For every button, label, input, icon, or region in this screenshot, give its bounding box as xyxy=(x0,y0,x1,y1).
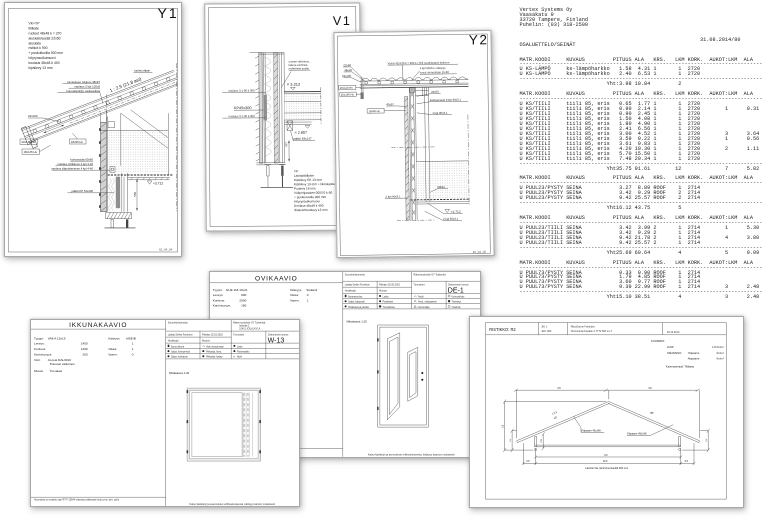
svg-text:Sama ulkona: Sama ulkona xyxy=(170,346,184,348)
svg-text:LUMI:: LUMI: xyxy=(667,345,674,349)
svg-text:Kynnyskisko: Kynnyskisko xyxy=(451,297,464,299)
svg-text:Huomioina on esitetty vain RT-: Huomioina on esitetty vain RT-F-10544 oh… xyxy=(34,498,119,501)
svg-text:Mittakaava 1:20: Mittakaava 1:20 xyxy=(169,371,190,375)
svg-text:VA8-A 15x15: VA8-A 15x15 xyxy=(47,336,65,340)
svg-text:Katso käsittelyt ja asennukset: Katso käsittelyt ja asennukset erillisse… xyxy=(189,502,275,506)
svg-text:höyrynsulkumuovi: höyrynsulkumuovi xyxy=(28,56,55,60)
svg-text:+3.712: +3.712 xyxy=(153,181,163,185)
svg-text:OMAPAINO:: OMAPAINO: xyxy=(667,351,682,355)
svg-text:JAK: 900: JAK: 900 xyxy=(541,330,552,333)
svg-text:550: 550 xyxy=(132,191,136,196)
svg-text:naulaus 2 kpl 120x5: naulaus 2 kpl 120x5 xyxy=(74,84,100,88)
svg-text:Salpa, kiinnipervilo: Salpa, kiinnipervilo xyxy=(171,350,191,353)
svg-text:MSE/B: MSE/B xyxy=(126,336,136,340)
svg-text:4 kpl 90x3.1: 4 kpl 90x3.1 xyxy=(433,110,449,114)
svg-text:2 kpl 90x3.1: 2 kpl 90x3.1 xyxy=(386,194,402,198)
svg-text:4.5: 4.5 xyxy=(648,387,652,390)
svg-text:Painikkeet: Painikkeet xyxy=(382,301,393,304)
svg-text:1450: 1450 xyxy=(81,341,88,345)
svg-text:25.12.2013: 25.12.2013 xyxy=(667,331,680,334)
svg-text:18x95 Hs: 18x95 Hs xyxy=(71,140,83,144)
svg-text:18x145 Hs: 18x145 Hs xyxy=(23,150,37,154)
svg-text:22x50: 22x50 xyxy=(344,63,352,67)
svg-text:ristikot k 900: ristikot k 900 xyxy=(28,46,47,50)
svg-text:990: 990 xyxy=(241,293,246,297)
svg-text:Väri:: Väri: xyxy=(34,357,40,361)
svg-text:Tunnukset: Tunnukset xyxy=(413,284,424,287)
svg-text:kampanaula 3 kpl 90x3.1: kampanaula 3 kpl 90x3.1 xyxy=(430,97,461,101)
svg-text:Kätisyys: Kätisyys xyxy=(290,288,302,292)
svg-text:85°: 85° xyxy=(650,412,654,415)
svg-text:Dokumentin tunnus: Dokumentin tunnus xyxy=(268,333,289,336)
svg-text:kuumasinkitty naulauslista: kuumasinkitty naulauslista xyxy=(66,89,100,93)
svg-text:tuulenohjain: tuulenohjain xyxy=(134,68,151,72)
svg-text:180: 180 xyxy=(241,304,246,308)
svg-text:Leveys:: Leveys: xyxy=(34,341,45,345)
svg-text:48x48: 48x48 xyxy=(344,68,352,72)
svg-text:Hurmerinta Käyrätie 2 JYT2: Hurmerinta Käyrätie 2 JYT2 500 m+T xyxy=(570,330,612,333)
svg-text:Risto/Janne Forsblom: Risto/Janne Forsblom xyxy=(570,325,594,328)
svg-text:Muutos: Muutos xyxy=(202,339,211,342)
svg-text:Sisäänk: Sisäänk xyxy=(306,288,317,292)
svg-text:Ovisilmä: Ovisilmä xyxy=(451,307,460,309)
svg-text:18x95 Hs: 18x95 Hs xyxy=(369,109,381,113)
svg-text:V1: V1 xyxy=(332,14,351,28)
svg-text:1: 1 xyxy=(131,341,133,345)
svg-text:22x50: 22x50 xyxy=(431,89,439,93)
svg-text:= 3.212: = 3.212 xyxy=(286,82,300,87)
svg-text:Laatija Stefan Forsblom: Laatija Stefan Forsblom xyxy=(344,284,369,287)
svg-text:Niole: Niole xyxy=(237,356,243,358)
svg-text:Puitteetakko: Puitteetakko xyxy=(237,350,250,353)
svg-text:0.5: 0.5 xyxy=(526,460,530,463)
svg-text:4.5: 4.5 xyxy=(557,387,561,390)
svg-text:62_04_04: 62_04_04 xyxy=(159,247,173,251)
svg-text:0.5: 0.5 xyxy=(684,460,688,463)
svg-text:RISTIKKO: R2: RISTIKKO: R2 xyxy=(489,327,516,332)
svg-text:OVIKAAVIO: OVIKAAVIO xyxy=(255,276,298,283)
svg-text:Alapaarre: Alapaarre xyxy=(687,356,699,360)
svg-text:naulaus ristikkoon 4 kpl 4-40: naulaus ristikkoon 4 kpl 4-40 xyxy=(57,162,93,166)
svg-text:W-13: W-13 xyxy=(267,337,284,344)
svg-text:Lävistin tila, lämmöneristetil: Lävistin tila, lämmöneristetilä 500 mm xyxy=(585,466,628,470)
svg-text:naulaus yläpuitteeseen 4 kpl 4: naulaus yläpuitteeseen 4 kpl 4-40 xyxy=(51,166,93,170)
svg-text:1490: 1490 xyxy=(81,347,88,351)
svg-text:JM: 1: JM: 1 xyxy=(541,325,548,328)
svg-text:0: 0 xyxy=(131,352,133,356)
svg-text:Pikkasija, kimp.: Pikkasija, kimp. xyxy=(206,351,222,353)
svg-text:Mittakaava 1:20: Mittakaava 1:20 xyxy=(346,320,367,324)
svg-text:palkki 48x147: palkki 48x147 xyxy=(293,137,312,141)
svg-text:Korkeus:: Korkeus: xyxy=(212,299,224,303)
svg-text:Oikea:: Oikea: xyxy=(108,347,117,351)
svg-text:Salpa, korkiposti: Salpa, korkiposti xyxy=(171,355,188,358)
svg-text:Turvalukitus: Turvalukitus xyxy=(382,306,395,309)
svg-text:20x145 Hs: 20x145 Hs xyxy=(341,92,355,96)
svg-text:DE-1: DE-1 xyxy=(447,288,463,295)
svg-text:aluskate: aluskate xyxy=(28,41,41,45)
svg-text:Korkeus:: Korkeus: xyxy=(34,347,46,351)
svg-text:uuman vahvistus,: uuman vahvistus, xyxy=(288,59,309,63)
svg-text:Pikkasija, katiep.: Pikkasija, katiep. xyxy=(206,355,223,358)
svg-text:palkki KP 51x200: palkki KP 51x200 xyxy=(71,189,93,193)
svg-text:Hyväksyjä: Hyväksyjä xyxy=(167,339,179,342)
svg-text:Oikea:: Oikea: xyxy=(290,293,299,297)
svg-text:EUE 118 10x21: EUE 118 10x21 xyxy=(226,288,248,292)
svg-text:Kätisyys: Kätisyys xyxy=(108,336,120,340)
svg-text:Päiväys 26.05.2010: Päiväys 26.05.2010 xyxy=(379,284,401,287)
svg-text:2090: 2090 xyxy=(239,299,246,303)
svg-text:laita ja varmista: laita ja varmista xyxy=(288,63,307,67)
svg-text:= 2.807: = 2.807 xyxy=(294,131,306,135)
svg-text:Sisäverhouslevy 13 mm: Sisäverhouslevy 13 mm xyxy=(294,208,328,212)
svg-text:20x120 Hs: 20x120 Hs xyxy=(21,140,35,144)
svg-text:VK+YP: VK+YP xyxy=(28,21,40,25)
svg-text:10.0: 10.0 xyxy=(602,460,607,463)
svg-text:molemmin puolin: molemmin puolin xyxy=(288,66,309,70)
svg-text:Tyyppi:: Tyyppi: xyxy=(212,288,222,292)
svg-text:vasat alennataan 15-30: vasat alennataan 15-30 xyxy=(420,70,450,74)
svg-text:Saranasovitus: Saranasovitus xyxy=(347,296,362,299)
svg-text:40x97: 40x97 xyxy=(386,102,394,106)
svg-text:kipsilevy 13 mm: kipsilevy 13 mm xyxy=(28,66,52,70)
svg-text:1.8 Kn/m²: 1.8 Kn/m² xyxy=(712,345,724,349)
svg-text:lumiesteen tukipuu 48x97: lumiesteen tukipuu 48x97 xyxy=(67,80,100,84)
svg-text:Karmisyvyys:: Karmisyvyys: xyxy=(212,304,230,308)
svg-text:Vasen:: Vasen: xyxy=(290,299,299,303)
svg-text:Ovensulkija: Ovensulkija xyxy=(417,307,430,309)
svg-text:Muutos: Muutos xyxy=(379,290,388,293)
svg-text:48°: 48° xyxy=(553,416,558,420)
svg-text:Laatija Stefan Forsblom: Laatija Stefan Forsblom xyxy=(167,333,192,336)
svg-text:KUORMAT:: KUORMAT: xyxy=(651,339,665,343)
svg-text:9.0: 9.0 xyxy=(604,454,608,457)
svg-text:Suunnittelutoimisto: Suunnittelutoimisto xyxy=(167,321,188,324)
svg-text:1:2.5: 1:2.5 xyxy=(551,410,558,415)
svg-text:Muuta:: Muuta: xyxy=(34,368,44,372)
svg-text:Katemateriaali: Tiilikatto: Katemateriaali: Tiilikatto xyxy=(666,364,695,368)
svg-text:Turvalasi: Turvalasi xyxy=(49,368,62,372)
svg-text:naulaus 3 1-90 k 300: naulaus 3 1-90 k 300 xyxy=(228,88,255,92)
svg-text:Lukko: Lukko xyxy=(382,297,389,299)
svg-text:KP45x300: KP45x300 xyxy=(233,106,251,110)
svg-text:1: 1 xyxy=(131,347,133,351)
svg-text:20x120 Hs: 20x120 Hs xyxy=(340,85,354,89)
svg-text:Tunnukset: Tunnukset xyxy=(233,333,244,336)
svg-text:tiilikate: tiilikate xyxy=(28,26,38,30)
svg-text:kulmanaula 60x60: kulmanaula 60x60 xyxy=(70,157,93,161)
svg-text:Pitkäsalpa ja painike: Pitkäsalpa ja painike xyxy=(348,306,370,309)
svg-text:Päiväys 25.02.2010: Päiväys 25.02.2010 xyxy=(202,333,224,336)
svg-text:Hyväksyjä: Hyväksyjä xyxy=(344,290,356,293)
svg-text:IKKUNAKAAVIO: IKKUNAKAAVIO xyxy=(69,322,127,329)
svg-text:62_04_02: 62_04_02 xyxy=(473,249,487,253)
svg-text:0.4: 0.4 xyxy=(706,438,708,442)
svg-text:Leveys:: Leveys: xyxy=(212,293,223,297)
svg-text:Dokumentin tunnus: Dokumentin tunnus xyxy=(448,284,469,287)
svg-text:Karmisyvyys:: Karmisyvyys: xyxy=(34,352,52,356)
svg-text:4 kpl 90x3.1 etäisyys: 4 kpl 90x3.1 etäisyys xyxy=(420,65,446,69)
svg-text:tiilikko: tiilikko xyxy=(438,184,446,188)
svg-text:Y2: Y2 xyxy=(469,32,489,47)
svg-text:Rakennuskohde OY Työkenttä: Rakennuskohde OY Työkenttä xyxy=(233,321,266,324)
svg-text:+ puskuituvilla 500 mm: + puskuituvilla 500 mm xyxy=(28,51,63,55)
svg-text:1.6: 1.6 xyxy=(501,424,504,428)
svg-text:Vasen:: Vasen: xyxy=(108,352,117,356)
svg-text:22x100: 22x100 xyxy=(28,114,38,118)
svg-text:Kn/m²: Kn/m² xyxy=(716,351,723,355)
svg-text:0.4: 0.4 xyxy=(510,438,512,442)
svg-text:477: 477 xyxy=(284,142,288,147)
svg-text:Laitto: Laitto xyxy=(237,345,243,348)
svg-text:Puuosat valkoinen: Puuosat valkoinen xyxy=(49,362,74,366)
svg-text:Kn/m²: Kn/m² xyxy=(716,356,723,360)
svg-text:0: 0 xyxy=(306,293,308,297)
svg-text:Rakennuskohde OY Työkenttä: Rakennuskohde OY Työkenttä xyxy=(413,274,446,277)
svg-text:2 kpl 90x3.1: 2 kpl 90x3.1 xyxy=(443,216,459,220)
svg-text:Huku avautuvaan: Huku avautuvaan xyxy=(206,345,224,348)
svg-text:1 : 2.5 (21.8 ast): 1 : 2.5 (21.8 ast) xyxy=(109,76,142,93)
svg-text:koolaus 48x48 k 400: koolaus 48x48 k 400 xyxy=(28,61,59,65)
svg-text:ruoteet 48x48 k = 370: ruoteet 48x48 k = 370 xyxy=(28,31,61,35)
svg-text:Tyyppi:: Tyyppi: xyxy=(34,336,44,340)
svg-text:Yksilö: Yksilö xyxy=(417,297,424,299)
svg-text:Salpa, kirjepostil.: Salpa, kirjepostil. xyxy=(348,301,366,304)
svg-text:Tiivistetyt: Tiivistetyt xyxy=(451,301,461,304)
svg-text:1: 1 xyxy=(306,299,308,303)
svg-text:Katso käsittelyt ja asennukset: Katso käsittelyt ja asennukset erillisse… xyxy=(368,453,455,457)
svg-text:22x100: 22x100 xyxy=(342,73,352,77)
svg-text:Yksiö, vakiopaketti: Yksiö, vakiopaketti xyxy=(417,301,436,304)
svg-text:aluskatelaudat 22x50: aluskatelaudat 22x50 xyxy=(28,36,60,40)
svg-text:Suunnittelutoimisto: Suunnittelutoimisto xyxy=(344,274,365,277)
svg-text:200: 200 xyxy=(82,352,87,356)
svg-text:naulaus 3 1-90 k 300: naulaus 3 1-90 k 300 xyxy=(228,114,255,118)
svg-text:31431 JOULUKYLÄ: 31431 JOULUKYLÄ xyxy=(239,327,261,330)
svg-text:Yläpaarre: Yläpaarre xyxy=(687,351,699,355)
svg-text:700: 700 xyxy=(541,438,543,442)
svg-text:+3.712: +3.712 xyxy=(451,209,461,213)
svg-text:Y1: Y1 xyxy=(157,5,178,21)
